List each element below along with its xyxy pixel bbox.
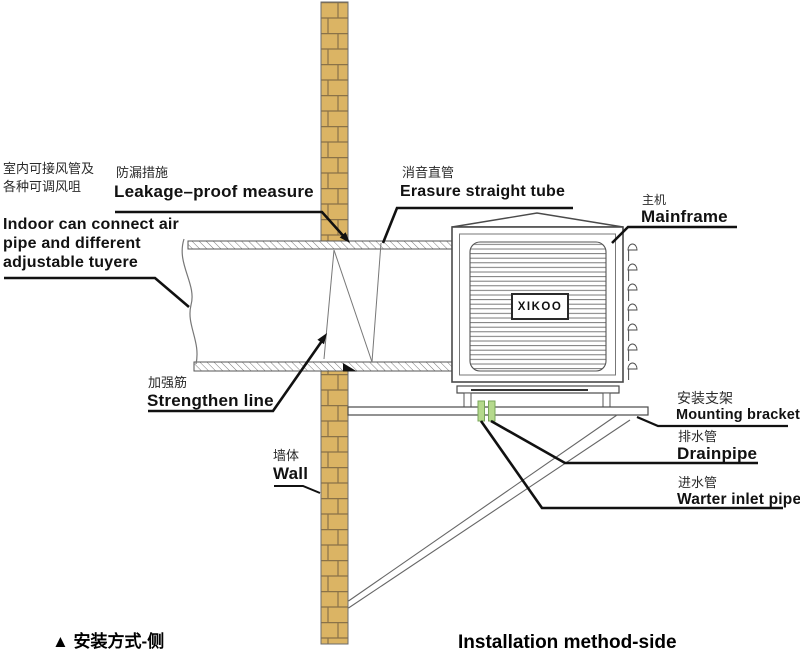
label-indoor-en-line1: Indoor can connect air <box>3 216 179 233</box>
label-bracket-zh: 安装支架 <box>677 390 733 406</box>
label-indoor-en-line3: adjustable tuyere <box>3 254 138 271</box>
label-leakage-en: Leakage–proof measure <box>114 182 314 202</box>
label-erasure-en: Erasure straight tube <box>400 183 565 201</box>
strut-line-2 <box>349 420 631 608</box>
caption-en: Installation method-side <box>458 632 677 654</box>
label-indoor-zh-1: 室内可接风管及 <box>3 162 94 177</box>
label-water-inlet-zh: 进水管 <box>678 476 717 491</box>
strengthen-line-marks <box>324 243 381 362</box>
label-erasure-zh: 消音直管 <box>402 166 454 181</box>
label-water-inlet-en: Warter inlet pipe <box>677 491 800 509</box>
label-mainframe-zh: 主机 <box>642 194 666 208</box>
drainpipe-stub <box>489 401 496 421</box>
label-drainpipe-en: Drainpipe <box>677 444 757 464</box>
caption-zh: ▲ 安装方式-侧 <box>52 632 164 652</box>
label-leakage-zh: 防漏措施 <box>116 166 168 181</box>
label-indoor-en: Indoor can connect air pipe and differen… <box>3 215 179 272</box>
label-strengthen-zh: 加强筋 <box>148 376 187 391</box>
label-indoor-en-line2: pipe and different <box>3 235 141 252</box>
duct-bottom-band <box>194 362 452 371</box>
air-duct <box>182 239 452 372</box>
diagram-linework <box>0 0 800 659</box>
label-bracket-en: Mounting bracket <box>676 407 800 424</box>
duct-top-band <box>188 241 452 249</box>
leader-wall <box>274 486 320 493</box>
label-strengthen-en: Strengthen line <box>147 391 274 411</box>
water-inlet-pipe-stub <box>478 401 485 421</box>
label-wall-zh: 墙体 <box>273 449 299 464</box>
louver-hooks <box>628 244 637 380</box>
leader-mainframe <box>612 227 737 243</box>
brand-logo: XIKOO <box>511 293 569 320</box>
unit-roof <box>452 213 623 227</box>
label-wall-en: Wall <box>273 464 308 484</box>
unit-leg-left <box>464 393 471 408</box>
label-indoor-zh-2: 各种可调风咀 <box>3 180 81 195</box>
installation-diagram-side-view: XIKOO 室内可接风管及 各种可调风咀 Indoor can connect … <box>0 0 800 659</box>
brick-wall <box>321 2 348 644</box>
label-mainframe-en: Mainframe <box>641 207 728 227</box>
leader-indoor <box>4 278 189 307</box>
unit-leg-right <box>603 393 610 408</box>
label-drainpipe-zh: 排水管 <box>678 430 717 445</box>
